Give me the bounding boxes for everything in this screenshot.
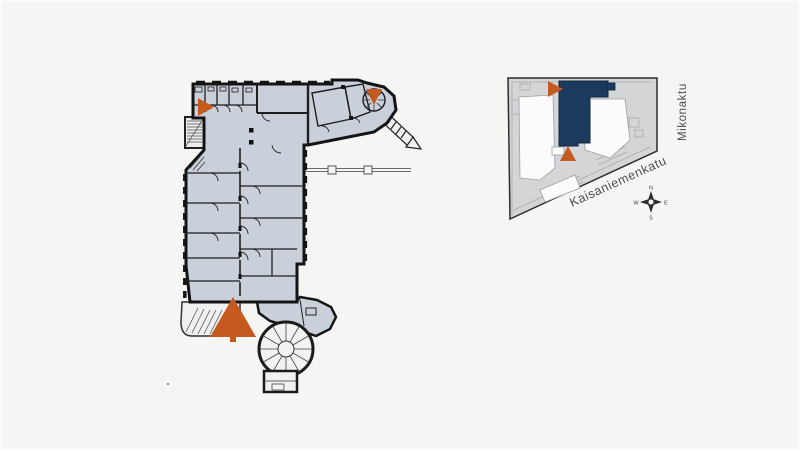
- compass-west-label: W: [633, 201, 639, 207]
- spiral-staircase-tower: [259, 322, 313, 376]
- street-label-mikonkatu: Mikonaktu: [677, 83, 689, 141]
- boundary-fence-line: [303, 166, 411, 174]
- compass-north-label: N: [649, 186, 653, 192]
- compass-rose: N E S W: [633, 186, 668, 222]
- vestibule: [264, 371, 297, 392]
- page-root: Mikonaktu Kaisaniemenkatu N E S W: [0, 0, 800, 450]
- floor-plan: [167, 80, 421, 392]
- compass-east-label: E: [664, 201, 668, 207]
- side-stair-block: [185, 117, 204, 148]
- reference-dot: [167, 383, 169, 385]
- compass-south-label: S: [649, 216, 653, 222]
- key-map: Mikonaktu Kaisaniemenkatu N E S W: [508, 78, 689, 222]
- drawing-canvas: Mikonaktu Kaisaniemenkatu N E S W: [0, 0, 800, 450]
